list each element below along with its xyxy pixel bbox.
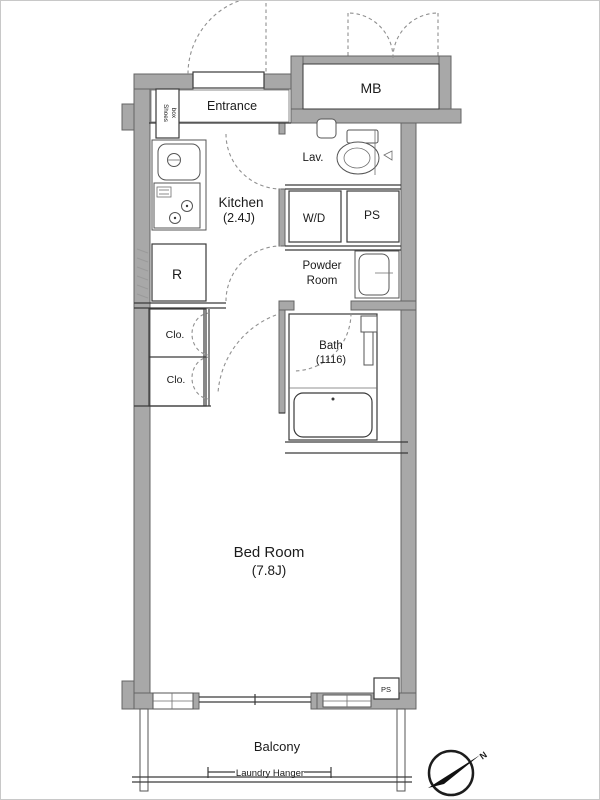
balcony-sliding-door xyxy=(199,694,311,705)
mb-door-arc-right xyxy=(393,13,438,58)
balcony-rail-right xyxy=(397,709,405,791)
powder-room-area: Powder Room xyxy=(226,246,399,301)
pipe-space-label: PS xyxy=(364,208,380,222)
floor-plan-page: Shoes box Entrance MB Kitch xyxy=(0,0,600,800)
balcony-label: Balcony xyxy=(254,739,301,754)
refrigerator-label: R xyxy=(172,266,182,282)
mb-label: MB xyxy=(361,80,382,96)
bedroom-area: Bed Room (7.8J) PS xyxy=(218,315,399,699)
north-label: N xyxy=(478,750,489,762)
kitchen-sink-icon xyxy=(158,144,200,180)
wd-ps-area: W/D PS xyxy=(285,191,401,250)
shower-unit-icon xyxy=(361,316,377,365)
bath-size-label: (1116) xyxy=(316,354,346,366)
window-right xyxy=(323,695,371,707)
bathtub-icon xyxy=(294,393,372,437)
closet-upper-label: Clo. xyxy=(166,329,185,341)
balcony-rail-left xyxy=(140,709,148,791)
windows xyxy=(153,693,371,709)
closet-door-arc-lower xyxy=(192,357,210,399)
lavatory-label: Lav. xyxy=(303,152,324,164)
washbasin-icon xyxy=(355,251,399,298)
entrance-area: Shoes box Entrance xyxy=(149,1,291,138)
bath-label: Bath xyxy=(319,340,343,352)
kitchen-stove-icon xyxy=(154,183,200,228)
entrance-door xyxy=(193,72,264,88)
window-left xyxy=(153,693,193,709)
kitchen-label: Kitchen xyxy=(218,195,263,210)
bedroom-size-label: (7.8J) xyxy=(252,563,287,578)
mb-door-arc-left xyxy=(348,13,393,58)
bedroom-label: Bed Room xyxy=(234,544,305,561)
lav-corner-sink-icon xyxy=(317,119,336,138)
kitchen-area: Kitchen (2.4J) xyxy=(152,140,264,230)
bedroom-door-arc xyxy=(218,315,276,393)
shoes-box-label-2: box xyxy=(170,108,177,119)
north-compass-icon: N xyxy=(428,750,489,795)
closet-door-arc-upper xyxy=(192,313,210,355)
powder-room-label-2: Room xyxy=(307,275,338,287)
kitchen-size-label: (2.4J) xyxy=(223,211,255,225)
lavatory-area: Lav. xyxy=(226,119,401,189)
washer-dryer-label: W/D xyxy=(303,213,325,225)
laundry-hanger-label: Laundry Hanger xyxy=(236,768,304,779)
bath-area: Bath (1116) xyxy=(285,313,408,453)
lavatory-door-arc xyxy=(226,134,281,189)
shoes-box-label-1: Shoes xyxy=(162,104,169,122)
toilet-icon xyxy=(337,130,392,175)
entrance-door-arc xyxy=(188,1,266,74)
balcony-area: Balcony Laundry Hanger xyxy=(132,709,412,791)
powder-room-door-arc xyxy=(226,246,281,301)
ps-shaft-label: PS xyxy=(381,685,391,694)
floor-plan-image: Shoes box Entrance MB Kitch xyxy=(1,1,600,800)
closet-lower-label: Clo. xyxy=(167,374,186,386)
powder-room-label-1: Powder xyxy=(303,260,342,272)
entrance-label: Entrance xyxy=(207,99,257,113)
